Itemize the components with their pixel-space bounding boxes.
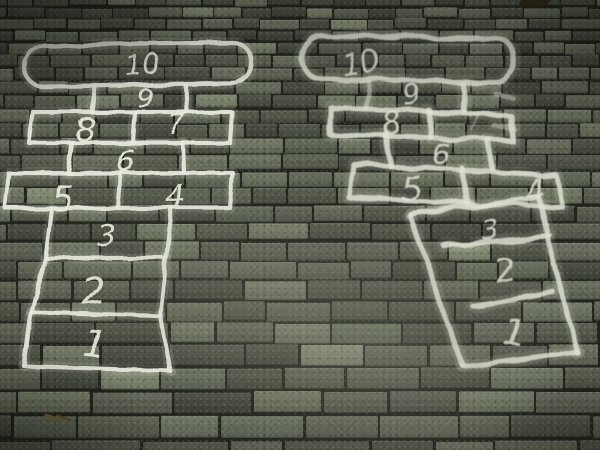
brick-row xyxy=(0,416,600,439)
paving-brick xyxy=(573,31,600,42)
brick-row xyxy=(0,281,600,300)
brick-row xyxy=(0,139,600,153)
paving-brick xyxy=(594,301,600,320)
paving-brick xyxy=(440,31,474,42)
paving-brick xyxy=(580,123,600,137)
paving-brick xyxy=(346,109,387,122)
paving-brick xyxy=(0,81,37,93)
paving-brick xyxy=(165,67,210,79)
paving-brick xyxy=(469,110,501,123)
paving-brick xyxy=(298,262,349,280)
paving-brick xyxy=(456,302,520,321)
brick-row xyxy=(0,323,600,343)
paving-brick xyxy=(431,188,476,204)
paving-brick xyxy=(421,367,489,388)
paving-brick xyxy=(175,110,220,123)
paving-brick xyxy=(0,243,42,260)
paving-brick xyxy=(236,82,281,94)
paving-brick xyxy=(389,302,454,321)
paving-brick xyxy=(186,173,240,188)
paving-brick xyxy=(21,303,70,322)
paving-brick xyxy=(216,206,274,222)
paving-brick xyxy=(82,9,112,19)
brick-row xyxy=(0,345,600,365)
paving-brick xyxy=(48,44,82,55)
paving-brick xyxy=(146,139,189,153)
paving-brick xyxy=(119,67,164,79)
paving-brick xyxy=(359,30,399,41)
paving-brick xyxy=(239,94,271,107)
paving-brick xyxy=(11,171,58,186)
paving-brick xyxy=(333,31,358,42)
paving-brick xyxy=(545,31,571,42)
paving-brick xyxy=(73,156,122,171)
paving-brick xyxy=(584,188,600,204)
paving-brick xyxy=(0,392,16,414)
paving-brick xyxy=(238,43,276,54)
paving-brick xyxy=(566,95,600,108)
paving-brick xyxy=(205,42,236,53)
paving-brick xyxy=(334,0,364,7)
paving-brick xyxy=(135,19,165,29)
paving-brick xyxy=(459,391,534,413)
paving-brick xyxy=(446,68,484,80)
paving-brick xyxy=(420,110,467,123)
paving-brick xyxy=(241,243,286,260)
paving-brick xyxy=(324,391,387,413)
paving-brick xyxy=(460,416,509,439)
paving-brick xyxy=(77,96,119,109)
paving-brick xyxy=(309,109,344,122)
paving-brick xyxy=(247,69,292,81)
paving-brick xyxy=(214,7,241,17)
paving-brick xyxy=(235,0,267,7)
brick-row xyxy=(0,302,600,321)
paving-brick xyxy=(181,261,227,279)
paving-brick xyxy=(228,30,256,41)
paving-brick xyxy=(436,442,493,450)
paving-brick xyxy=(275,206,312,222)
paving-brick xyxy=(301,345,364,365)
paving-brick xyxy=(34,19,66,29)
paving-brick xyxy=(0,124,21,138)
paving-brick xyxy=(393,262,455,280)
paving-brick xyxy=(96,323,168,343)
paving-brick xyxy=(141,110,173,123)
paving-brick xyxy=(174,392,251,414)
paving-brick xyxy=(166,0,201,6)
paving-brick xyxy=(561,0,595,6)
paving-brick xyxy=(35,96,75,109)
paving-brick xyxy=(101,18,133,28)
paving-brick xyxy=(31,109,62,122)
paving-brick xyxy=(339,139,370,153)
paving-brick xyxy=(536,94,564,107)
paving-brick xyxy=(424,7,457,17)
paving-brick xyxy=(308,281,360,300)
paving-brick xyxy=(470,43,502,54)
paving-brick xyxy=(304,56,335,67)
paving-brick xyxy=(165,95,195,108)
paving-brick xyxy=(69,82,106,94)
paving-brick xyxy=(390,391,457,413)
paving-brick xyxy=(197,224,246,241)
paving-brick xyxy=(160,205,213,221)
paving-brick xyxy=(34,0,69,7)
paving-brick xyxy=(222,110,259,123)
paving-brick xyxy=(334,9,368,19)
paving-brick xyxy=(0,95,3,108)
paving-brick xyxy=(550,243,600,260)
paving-brick xyxy=(492,243,548,260)
paving-brick xyxy=(212,189,251,205)
paving-brick xyxy=(368,20,393,30)
paving-brick xyxy=(283,154,337,169)
paving-brick xyxy=(365,346,427,366)
paving-brick xyxy=(430,346,490,366)
paving-brick xyxy=(436,95,465,108)
paving-brick xyxy=(475,30,513,41)
photo-scene: 10987654321 10987654321 xyxy=(0,0,600,450)
paving-brick xyxy=(0,20,33,30)
paving-brick xyxy=(0,225,6,242)
paving-brick xyxy=(120,44,149,55)
paving-brick xyxy=(486,68,530,80)
brick-row xyxy=(0,68,600,80)
paving-brick xyxy=(391,172,443,187)
paving-brick xyxy=(503,82,541,94)
paving-brick xyxy=(268,0,300,6)
paving-brick xyxy=(294,69,323,81)
paving-brick xyxy=(18,391,90,413)
paving-brick xyxy=(364,206,424,222)
paving-brick xyxy=(562,19,600,29)
paving-brick xyxy=(532,68,557,80)
paving-brick xyxy=(511,415,590,438)
paving-brick xyxy=(542,81,588,93)
paving-brick xyxy=(424,281,478,300)
paving-brick xyxy=(229,155,281,170)
paving-brick xyxy=(356,96,396,109)
paving-brick xyxy=(505,124,546,138)
paving-brick xyxy=(151,31,191,42)
paving-brick xyxy=(527,140,571,154)
paving-brick xyxy=(101,369,159,390)
brick-row xyxy=(0,0,600,6)
paving-brick xyxy=(108,0,135,5)
paving-brick xyxy=(151,81,187,93)
paving-brick xyxy=(230,261,296,279)
paving-brick xyxy=(143,442,228,450)
paving-brick xyxy=(396,156,444,171)
paving-brick xyxy=(0,156,20,171)
paving-brick xyxy=(432,224,480,241)
paving-brick xyxy=(52,441,140,450)
paving-brick xyxy=(347,243,398,260)
paving-brick xyxy=(94,140,145,154)
paving-brick xyxy=(491,171,541,186)
paving-brick xyxy=(0,324,29,344)
paving-brick xyxy=(565,44,594,55)
paving-brick xyxy=(337,55,377,66)
paving-brick xyxy=(171,323,215,343)
paving-brick xyxy=(68,189,118,205)
paving-brick xyxy=(372,441,433,450)
brick-row xyxy=(0,262,600,280)
paving-brick xyxy=(11,140,59,154)
paving-brick xyxy=(499,261,548,279)
paving-brick xyxy=(401,30,438,41)
paving-brick xyxy=(0,442,50,450)
paving-brick xyxy=(543,281,600,300)
paving-brick xyxy=(536,392,600,414)
paving-brick xyxy=(0,7,6,17)
paving-brick xyxy=(306,416,378,439)
paving-brick xyxy=(279,124,321,138)
paving-brick xyxy=(498,155,546,170)
paving-brick xyxy=(93,392,172,414)
paving-brick xyxy=(526,0,560,6)
paving-brick xyxy=(224,301,265,320)
paving-brick xyxy=(113,8,147,18)
paving-brick xyxy=(495,441,577,450)
paving-brick xyxy=(124,156,177,171)
paving-brick xyxy=(0,188,24,204)
paving-brick xyxy=(69,205,105,221)
paving-brick xyxy=(0,261,16,279)
paving-brick xyxy=(331,20,367,30)
paving-brick xyxy=(260,20,298,30)
paving-brick xyxy=(108,205,159,221)
paving-brick xyxy=(372,224,430,241)
paving-brick xyxy=(0,282,16,301)
paving-brick xyxy=(102,346,168,366)
paving-brick xyxy=(491,368,562,389)
paving-brick xyxy=(167,19,201,29)
paving-brick xyxy=(137,224,196,241)
paving-brick xyxy=(230,139,283,153)
paving-brick xyxy=(332,301,387,320)
paving-brick xyxy=(189,81,233,93)
paving-brick xyxy=(234,18,259,28)
paving-brick xyxy=(27,188,66,204)
paving-brick xyxy=(573,139,600,153)
paving-brick xyxy=(145,242,199,259)
paving-brick xyxy=(379,55,404,66)
paving-brick xyxy=(254,391,322,413)
paving-brick xyxy=(249,223,308,240)
paving-brick xyxy=(310,223,370,240)
paving-brick xyxy=(191,139,229,153)
paving-brick xyxy=(285,441,370,450)
paving-brick xyxy=(92,224,134,241)
paving-brick xyxy=(549,345,598,365)
paving-brick xyxy=(238,56,271,67)
paving-brick xyxy=(243,8,271,18)
brick-row xyxy=(0,31,600,42)
brick-row xyxy=(0,82,600,94)
paving-brick xyxy=(131,281,172,300)
paving-brick xyxy=(60,124,98,138)
paving-brick xyxy=(134,55,174,66)
paving-brick xyxy=(100,124,134,138)
paving-brick xyxy=(314,205,362,221)
paving-brick xyxy=(175,55,204,66)
paving-brick xyxy=(78,416,159,439)
paving-brick xyxy=(339,156,393,171)
paving-brick xyxy=(285,139,337,153)
paving-brick xyxy=(406,69,444,81)
brick-row xyxy=(0,110,600,123)
paving-brick xyxy=(273,95,316,108)
paving-brick xyxy=(395,18,426,28)
paving-brick xyxy=(206,55,237,66)
paving-brick xyxy=(285,368,344,389)
paving-brick xyxy=(161,369,225,390)
paving-brick xyxy=(74,281,129,300)
paving-brick xyxy=(136,0,165,6)
paving-brick xyxy=(209,124,244,138)
paving-brick xyxy=(403,81,440,93)
paving-brick xyxy=(325,68,361,80)
paving-brick xyxy=(212,68,245,80)
paving-brick xyxy=(12,205,67,221)
paving-brick xyxy=(593,416,600,439)
brick-row xyxy=(0,19,600,29)
paving-brick xyxy=(43,346,100,366)
paving-brick xyxy=(504,109,547,122)
paving-brick xyxy=(372,140,418,154)
brick-row xyxy=(0,368,600,389)
brick-row xyxy=(0,441,600,450)
paving-brick xyxy=(288,188,336,204)
paving-brick xyxy=(22,155,71,170)
paving-brick xyxy=(133,261,179,279)
paving-brick xyxy=(295,30,331,41)
paving-brick xyxy=(391,188,429,204)
paving-brick xyxy=(273,56,302,67)
brick-row xyxy=(0,392,600,414)
paving-brick xyxy=(593,110,600,123)
brick-row xyxy=(0,242,600,259)
paving-brick xyxy=(401,125,433,139)
paving-brick xyxy=(562,7,588,17)
paving-brick xyxy=(92,55,132,66)
paving-brick xyxy=(161,416,218,439)
paving-brick xyxy=(0,302,19,321)
paving-brick xyxy=(68,20,100,30)
paving-brick xyxy=(529,19,560,29)
paving-brick xyxy=(548,109,591,122)
paving-brick xyxy=(477,188,528,204)
paving-brick xyxy=(18,56,49,67)
paving-brick xyxy=(275,324,329,344)
paving-brick xyxy=(196,95,237,108)
paving-brick xyxy=(278,43,317,54)
paving-brick xyxy=(530,188,582,204)
paving-brick xyxy=(60,172,107,187)
paving-brick xyxy=(258,31,294,42)
paving-brick xyxy=(302,0,333,6)
paving-brick xyxy=(322,125,359,139)
paving-brick xyxy=(242,172,287,187)
paving-brick xyxy=(532,205,574,221)
paving-brick xyxy=(0,55,17,66)
paving-brick xyxy=(49,224,90,241)
paving-brick xyxy=(580,440,600,450)
paving-brick xyxy=(457,262,497,280)
paving-brick xyxy=(56,69,84,81)
paving-brick xyxy=(505,56,540,67)
paving-brick xyxy=(504,43,532,54)
paving-brick xyxy=(179,155,227,170)
paving-brick xyxy=(446,155,496,170)
paving-brick xyxy=(492,7,523,17)
paving-brick xyxy=(318,96,355,109)
paving-brick xyxy=(18,281,71,300)
paving-brick xyxy=(289,172,332,187)
paving-brick xyxy=(64,261,131,279)
paving-brick xyxy=(590,82,600,94)
paving-brick xyxy=(136,124,175,138)
paving-brick xyxy=(403,43,437,54)
paving-brick xyxy=(496,19,527,29)
paving-brick xyxy=(97,110,139,123)
paving-brick xyxy=(8,224,48,241)
paving-brick xyxy=(589,9,600,19)
paving-brick xyxy=(108,82,150,94)
paving-brick xyxy=(39,81,67,93)
paving-brick xyxy=(149,7,181,17)
paving-brick xyxy=(366,0,400,7)
paving-brick xyxy=(449,243,490,260)
paving-brick xyxy=(85,68,117,80)
paving-brick xyxy=(362,281,422,300)
brick-row xyxy=(0,224,600,241)
paving-brick xyxy=(501,95,535,108)
paving-brick xyxy=(402,0,435,6)
paving-brick xyxy=(0,69,13,81)
paving-brick xyxy=(0,109,29,122)
brick-row xyxy=(0,43,600,54)
paving-brick xyxy=(201,242,239,259)
paving-brick xyxy=(467,125,503,139)
paving-brick xyxy=(80,32,118,43)
paving-brick xyxy=(400,242,447,259)
paving-brick xyxy=(217,323,273,343)
paving-brick xyxy=(319,43,361,54)
paving-brick xyxy=(283,82,324,94)
paving-brick xyxy=(480,282,541,301)
paving-brick xyxy=(363,43,402,54)
paving-brick xyxy=(8,0,32,7)
paving-brick xyxy=(592,172,600,187)
paving-brick xyxy=(42,368,98,389)
paving-brick xyxy=(117,303,164,322)
paving-brick xyxy=(61,138,92,152)
paving-brick xyxy=(231,442,283,450)
paving-brick xyxy=(466,95,498,108)
paving-brick xyxy=(406,55,431,66)
paving-brick xyxy=(360,81,402,93)
paving-brick xyxy=(396,9,422,19)
paving-brick xyxy=(363,68,405,80)
paving-brick xyxy=(177,125,207,139)
paving-brick xyxy=(167,303,222,322)
paving-brick xyxy=(445,171,490,186)
paving-brick xyxy=(307,8,332,18)
paving-brick xyxy=(427,205,470,221)
